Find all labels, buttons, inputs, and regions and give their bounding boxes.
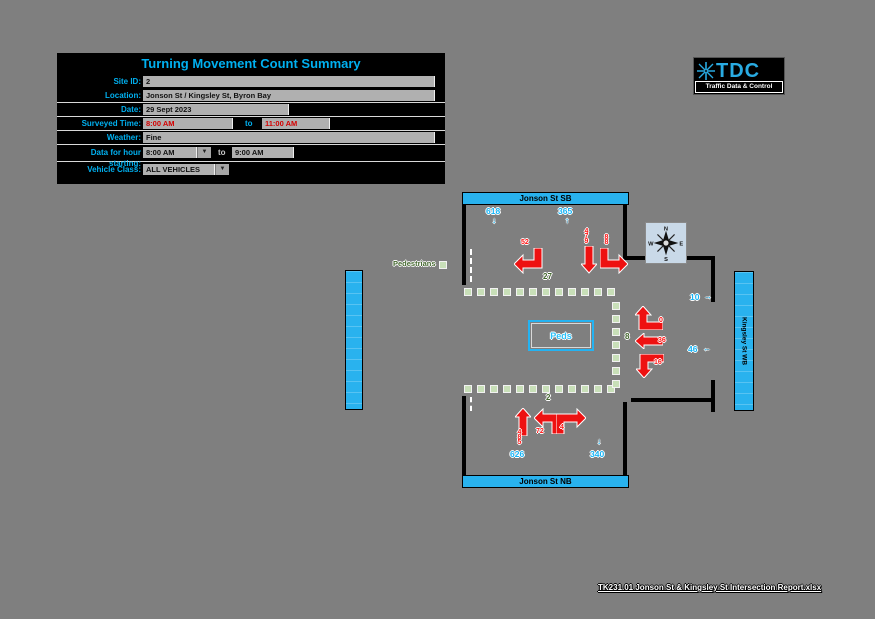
crosswalk-segment <box>477 385 485 393</box>
crosswalk-segment <box>594 385 602 393</box>
form-title: Turning Movement Count Summary <box>57 56 445 71</box>
weather-label: Weather: <box>57 132 141 143</box>
crosswalk-segment <box>503 288 511 296</box>
surveyed-time-from-field[interactable]: 8:00 AM <box>143 118 233 129</box>
crosswalk-segment <box>516 288 524 296</box>
compass-e: E <box>679 241 683 247</box>
sb-through-count: 479 <box>583 228 590 243</box>
crosswalk-segment <box>503 385 511 393</box>
summary-form: Turning Movement Count Summary Site ID: … <box>57 53 445 184</box>
kerb-line <box>631 398 715 402</box>
nb-inbound-total: 626 <box>510 449 524 459</box>
crosswalk-segment <box>464 385 472 393</box>
row-divider <box>57 144 445 145</box>
crosswalk-segment <box>612 328 620 336</box>
sb-left-turn-arrow <box>600 248 628 274</box>
ped-count-south: 2 <box>546 393 550 402</box>
compass-w: W <box>648 241 654 247</box>
street-label-west-blank <box>345 270 363 410</box>
down-arrow-icon: ↓ <box>597 437 601 446</box>
pedestrians-legend-swatch <box>439 261 447 269</box>
left-arrow-icon: ← <box>703 344 711 353</box>
street-label-south: Jonson St NB <box>462 475 629 488</box>
sb-outbound-total: 365 <box>558 206 572 216</box>
site-id-label: Site ID: <box>57 76 141 87</box>
nb-through-count: 485 <box>516 429 523 444</box>
sb-right-turn-arrow <box>514 248 544 274</box>
crosswalk-segment <box>555 385 563 393</box>
crosswalk-segment <box>542 288 550 296</box>
surveyed-time-to-field[interactable]: 11:00 AM <box>262 118 330 129</box>
lane-edge-dashes <box>470 397 472 411</box>
compass-n: N <box>664 227 668 233</box>
street-label-east: Kingsley St WB <box>734 271 754 411</box>
crosswalk-segment <box>555 288 563 296</box>
hour-starting-to-word: to <box>218 147 226 158</box>
nb-outbound-total: 340 <box>590 449 604 459</box>
crosswalk-segment <box>477 288 485 296</box>
wb-side-count-top: 10 <box>690 292 699 302</box>
chevron-down-icon[interactable]: ▼ <box>197 147 211 158</box>
intersection-icon <box>696 61 716 81</box>
vehicle-class-dropdown[interactable]: ALL VEHICLES <box>143 164 215 175</box>
wb-side-count-bottom: 46 <box>688 344 697 354</box>
crosswalk-segment <box>568 385 576 393</box>
date-field[interactable]: 29 Sept 2023 <box>143 104 289 115</box>
crosswalk-segment <box>581 288 589 296</box>
row-divider <box>57 102 445 103</box>
compass-s: S <box>664 257 668 263</box>
kerb-line <box>462 396 466 475</box>
crosswalk-segment <box>516 385 524 393</box>
kerb-line <box>623 402 627 475</box>
sb-inbound-total: 618 <box>486 206 500 216</box>
sb-left-turn-count: 88 <box>603 234 610 244</box>
crosswalk-segment <box>529 288 537 296</box>
wb-left-turn-arrow <box>636 354 664 378</box>
crosswalk-segment <box>607 288 615 296</box>
logo-tagline: Traffic Data & Control <box>695 81 783 93</box>
nb-right-turn-count: 4 <box>560 424 564 431</box>
report-canvas: Turning Movement Count Summary Site ID: … <box>0 0 875 619</box>
date-label: Date: <box>57 104 141 115</box>
compass-icon: N E S W <box>646 223 686 263</box>
logo-acronym: TDC <box>716 60 760 82</box>
lane-edge-dashes <box>470 249 472 282</box>
crosswalk-segment <box>490 288 498 296</box>
peds-box: Peds <box>528 320 594 351</box>
location-label: Location: <box>57 90 141 101</box>
hour-starting-dropdown[interactable]: 8:00 AM <box>143 147 197 158</box>
crosswalk-segment <box>612 354 620 362</box>
surveyed-time-to-word: to <box>245 118 253 129</box>
location-field[interactable]: Jonson St / Kingsley St, Byron Bay <box>143 90 435 101</box>
surveyed-time-label: Surveyed Time: <box>57 118 141 129</box>
nb-left-turn-count: 72 <box>536 428 544 435</box>
crosswalk-segment <box>594 288 602 296</box>
row-divider <box>57 116 445 117</box>
street-label-north: Jonson St SB <box>462 192 629 205</box>
crosswalk-segment <box>490 385 498 393</box>
down-arrow-icon: ↓ <box>492 216 496 225</box>
crosswalk-segment <box>581 385 589 393</box>
crosswalk-segment <box>612 367 620 375</box>
sb-right-turn-count: 52 <box>521 239 529 246</box>
crosswalk-segment <box>612 380 620 388</box>
site-id-field[interactable]: 2 <box>143 76 435 87</box>
crosswalk-segment <box>568 288 576 296</box>
weather-field[interactable]: Fine <box>143 132 435 143</box>
chevron-down-icon[interactable]: ▼ <box>215 164 229 175</box>
crosswalk-segment <box>542 385 550 393</box>
crosswalk-segment <box>612 341 620 349</box>
report-filename: TK231.01 Jonson St & Kingsley St Interse… <box>598 583 821 592</box>
crosswalk-segment <box>529 385 537 393</box>
kerb-line <box>462 205 466 285</box>
wb-through-count: 36 <box>658 337 666 344</box>
sb-through-arrow <box>581 246 597 274</box>
wb-left-turn-count: 16 <box>654 359 662 366</box>
tdc-logo: TDC Traffic Data & Control <box>693 57 785 95</box>
crosswalk-segment <box>464 288 472 296</box>
hour-ending-field[interactable]: 9:00 AM <box>232 147 294 158</box>
row-divider <box>57 130 445 131</box>
wb-right-turn-count: 0 <box>659 317 663 324</box>
pedestrians-legend-label: Pedestrians <box>393 259 436 268</box>
kerb-line <box>711 380 715 412</box>
up-arrow-icon: ↑ <box>565 216 569 225</box>
right-arrow-icon: → <box>704 292 712 301</box>
crosswalk-segment <box>612 315 620 323</box>
vehicle-class-label: Vehicle Class: <box>57 164 141 175</box>
ped-count-north: 27 <box>543 272 552 281</box>
peds-box-label: Peds <box>531 323 591 348</box>
compass-rose: N E S W <box>645 222 687 264</box>
crosswalk-segment <box>612 302 620 310</box>
ped-count-east: 8 <box>625 332 629 341</box>
